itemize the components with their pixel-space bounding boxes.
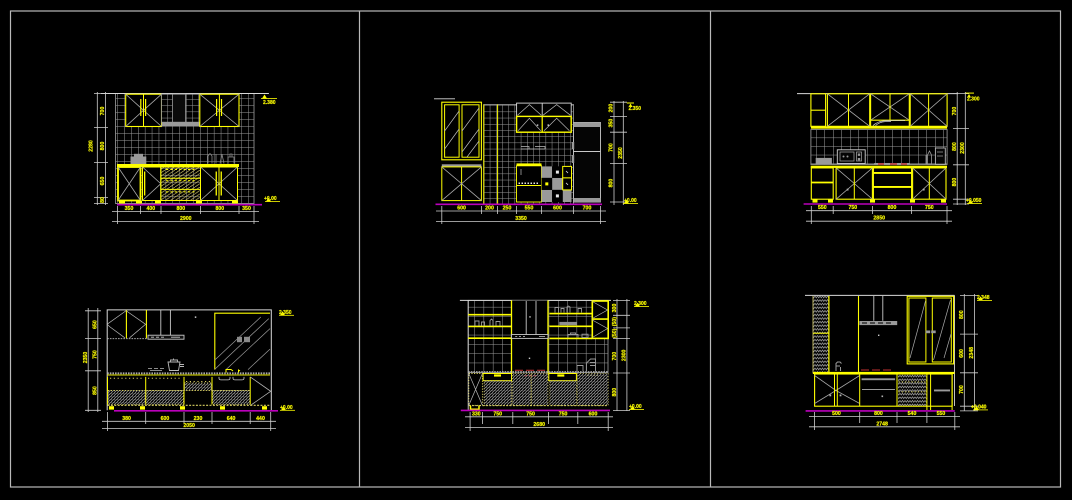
svg-text:380: 380 xyxy=(122,416,131,422)
svg-text:2.350: 2.350 xyxy=(629,106,642,112)
svg-text:800: 800 xyxy=(100,142,106,151)
svg-text:700: 700 xyxy=(612,352,618,361)
svg-text:600: 600 xyxy=(457,206,466,212)
svg-text:350: 350 xyxy=(125,206,134,212)
svg-text:750: 750 xyxy=(526,411,535,417)
svg-text:2.350: 2.350 xyxy=(279,310,292,316)
svg-text:500: 500 xyxy=(832,411,841,417)
svg-text:+0.00: +0.00 xyxy=(629,404,642,410)
svg-text:2.348: 2.348 xyxy=(977,295,990,301)
svg-text:700: 700 xyxy=(959,385,965,394)
svg-text:2.300: 2.300 xyxy=(967,97,980,103)
svg-text:2680: 2680 xyxy=(533,422,545,428)
svg-text:700: 700 xyxy=(609,143,615,152)
svg-text:2748: 2748 xyxy=(876,421,888,427)
svg-text:750: 750 xyxy=(493,411,502,417)
svg-text:2850: 2850 xyxy=(873,216,885,222)
svg-text:700: 700 xyxy=(952,107,958,116)
svg-text:(50): (50) xyxy=(612,317,618,326)
svg-text:+0.050: +0.050 xyxy=(966,198,982,204)
svg-text:700: 700 xyxy=(583,206,592,212)
svg-text:440: 440 xyxy=(256,416,265,422)
svg-text:350: 350 xyxy=(609,119,615,128)
svg-text:800: 800 xyxy=(952,142,958,151)
svg-text:230: 230 xyxy=(194,416,203,422)
svg-text:2900: 2900 xyxy=(180,216,192,222)
svg-text:700: 700 xyxy=(100,107,106,116)
svg-text:2300: 2300 xyxy=(960,142,966,154)
svg-text:800: 800 xyxy=(215,206,224,212)
svg-text:800: 800 xyxy=(874,411,883,417)
svg-text:850: 850 xyxy=(93,386,99,395)
svg-text:600: 600 xyxy=(589,411,598,417)
svg-text:2350: 2350 xyxy=(618,147,624,159)
svg-text:3350: 3350 xyxy=(515,216,527,222)
svg-text:750: 750 xyxy=(925,205,934,211)
svg-text:+0.040: +0.040 xyxy=(971,405,987,411)
svg-text:800: 800 xyxy=(609,179,615,188)
svg-text:540: 540 xyxy=(908,411,917,417)
svg-text:750: 750 xyxy=(93,350,99,359)
svg-text:350: 350 xyxy=(242,206,251,212)
svg-text:800: 800 xyxy=(888,205,897,211)
svg-text:2280: 2280 xyxy=(89,140,95,152)
svg-text:800: 800 xyxy=(176,206,185,212)
svg-text:550: 550 xyxy=(937,411,946,417)
svg-text:200: 200 xyxy=(485,206,494,212)
svg-text:2050: 2050 xyxy=(183,423,195,429)
svg-text:2.300: 2.300 xyxy=(634,301,647,307)
svg-text:250: 250 xyxy=(503,206,512,212)
svg-text:600: 600 xyxy=(959,349,965,358)
svg-text:+0.00: +0.00 xyxy=(624,198,637,204)
svg-text:600: 600 xyxy=(161,416,170,422)
svg-text:2300: 2300 xyxy=(622,350,628,362)
svg-text:550: 550 xyxy=(818,205,827,211)
svg-text:800: 800 xyxy=(612,388,618,397)
svg-text:80: 80 xyxy=(100,197,106,203)
svg-text:650: 650 xyxy=(100,177,106,186)
svg-text:330: 330 xyxy=(472,411,481,417)
svg-text:800: 800 xyxy=(952,178,958,187)
svg-text:650: 650 xyxy=(93,320,99,329)
svg-text:(50): (50) xyxy=(612,328,618,337)
svg-text:600: 600 xyxy=(553,206,562,212)
svg-text:400: 400 xyxy=(146,206,155,212)
svg-text:2.380: 2.380 xyxy=(263,100,276,106)
svg-text:640: 640 xyxy=(227,416,236,422)
svg-text:550: 550 xyxy=(525,206,534,212)
svg-text:2350: 2350 xyxy=(83,352,89,364)
svg-text:200: 200 xyxy=(609,104,615,113)
svg-text:+0.00: +0.00 xyxy=(280,405,293,411)
svg-text:800: 800 xyxy=(959,310,965,319)
svg-text:750: 750 xyxy=(848,205,857,211)
svg-text:+0.00: +0.00 xyxy=(264,196,277,202)
svg-text:2348: 2348 xyxy=(969,347,975,359)
svg-text:750: 750 xyxy=(559,411,568,417)
svg-text:300: 300 xyxy=(612,304,618,313)
